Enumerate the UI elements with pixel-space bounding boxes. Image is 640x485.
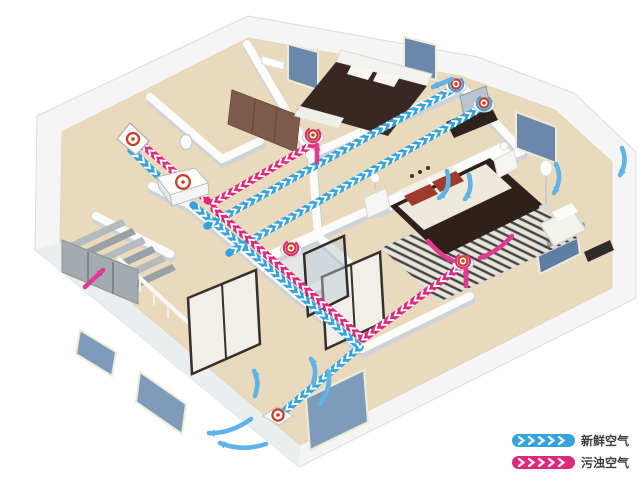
ventilation-diagram-page: { "diagram": { "kind": "home-fresh-air-v…	[0, 0, 640, 485]
floor-lamp-base	[539, 204, 553, 210]
window-stairs-left	[76, 330, 116, 376]
airflow-arrow-living-circulation-4	[220, 443, 266, 448]
shelf-decor	[426, 166, 430, 170]
legend-label-polluted-air: 污浊空气	[581, 455, 629, 470]
legend-row-polluted-air: 污浊空气	[512, 455, 629, 470]
shelf-decor	[418, 170, 422, 174]
shelf-decor	[410, 174, 414, 178]
legend: 新鲜空气 污浊空气	[512, 433, 629, 470]
airflow-arrow-living-circulation-3	[209, 419, 251, 433]
table-lamp	[500, 142, 508, 150]
house-3d-illustration: 新鲜空气 污浊空气	[0, 0, 640, 485]
floor-lamp-shade	[540, 160, 552, 176]
window-living-left	[136, 372, 186, 434]
toilet	[180, 135, 192, 150]
legend-row-fresh-air: 新鲜空气	[512, 433, 629, 448]
legend-label-fresh-air: 新鲜空气	[581, 433, 629, 448]
